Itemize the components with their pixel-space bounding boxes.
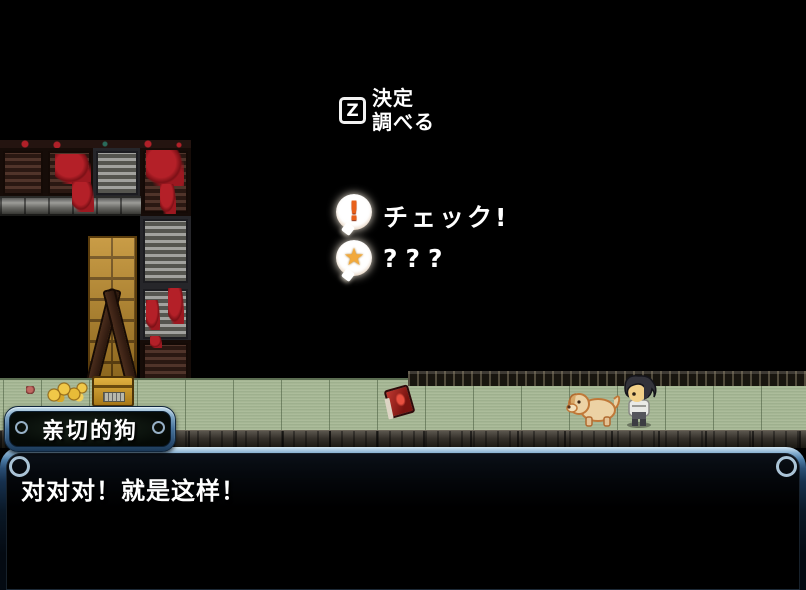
fence-rail-top [408, 371, 806, 386]
tutorial-action-examine: 調べる [372, 110, 435, 134]
hero-sprite [620, 373, 660, 429]
check-bubble: ! [336, 194, 372, 230]
message-box[interactable]: 对对对！就是这样！ [0, 447, 806, 590]
dog-sprite [566, 389, 622, 429]
message-text: 对对对！就是这样！ [21, 471, 785, 506]
name-box: 亲切的狗 [4, 406, 176, 452]
z-key-badge: Z [339, 97, 366, 124]
blood-stain [146, 150, 184, 186]
metal-rail [0, 196, 141, 216]
chest-plaque [103, 392, 125, 402]
message-box-inner: 对对对！就是这样！ [6, 453, 800, 590]
debris-item [26, 386, 35, 394]
blood-stain [55, 154, 91, 184]
check-label: チェック! [383, 198, 509, 234]
swirl-ornament-icon [152, 421, 165, 434]
speaker-name: 亲切的狗 [42, 413, 138, 445]
mystery-label: ??? [383, 244, 451, 273]
gold-chest [92, 376, 134, 407]
tutorial-action-confirm: 決定 [372, 86, 435, 110]
blood-stain [150, 336, 162, 348]
gold-pile [46, 381, 88, 402]
blood-stain [72, 182, 94, 212]
star-icon: ★ [343, 243, 365, 271]
blood-stain [160, 184, 176, 214]
exclamation-icon: ! [348, 196, 360, 227]
blood-stain [146, 300, 160, 330]
game-screen: Z 決定 調べる ! チェック! ★ ??? 对对对！就是这样！ 亲切的狗 [0, 0, 806, 590]
tutorial-hint: 決定 調べる [372, 86, 435, 134]
name-box-inner: 亲切的狗 [9, 411, 171, 447]
wall-panel-gray [140, 216, 191, 286]
mystery-bubble: ★ [336, 240, 372, 276]
wall-panel-brown [0, 148, 46, 198]
wall-panel-gray [93, 148, 141, 198]
blood-stain [168, 288, 184, 324]
swirl-ornament-icon [15, 421, 28, 434]
